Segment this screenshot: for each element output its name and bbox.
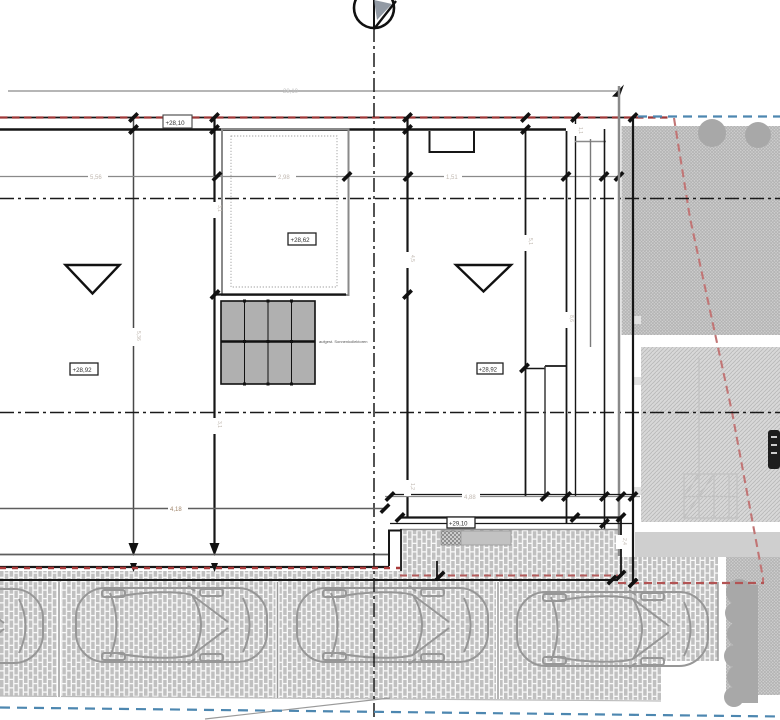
svg-text:aufgest. Sonnenkollektoren: aufgest. Sonnenkollektoren: [319, 339, 367, 344]
svg-text:4,88: 4,88: [464, 495, 476, 501]
svg-text:1,1: 1,1: [577, 127, 583, 134]
svg-text:5,56: 5,56: [90, 175, 102, 181]
svg-text:+28,92: +28,92: [479, 368, 498, 374]
svg-text:4,5: 4,5: [409, 255, 415, 262]
svg-text:2,4: 2,4: [621, 538, 627, 545]
svg-text:3,1: 3,1: [216, 205, 222, 212]
svg-text:+28,10: +28,10: [166, 120, 186, 127]
svg-text:2,98: 2,98: [278, 175, 290, 181]
svg-text:28,10: 28,10: [283, 89, 299, 95]
svg-text:+29,10: +29,10: [449, 522, 468, 528]
svg-text:8,6: 8,6: [568, 315, 574, 322]
svg-text:4,18: 4,18: [170, 507, 182, 513]
svg-text:3,1: 3,1: [216, 421, 222, 428]
svg-text:+28,62: +28,62: [291, 237, 311, 244]
svg-text:5,36: 5,36: [135, 331, 141, 341]
svg-text:1,51: 1,51: [446, 175, 458, 181]
svg-text:1,2: 1,2: [409, 483, 415, 490]
svg-text:+28,92: +28,92: [73, 367, 93, 374]
svg-text:5,1: 5,1: [527, 238, 533, 245]
